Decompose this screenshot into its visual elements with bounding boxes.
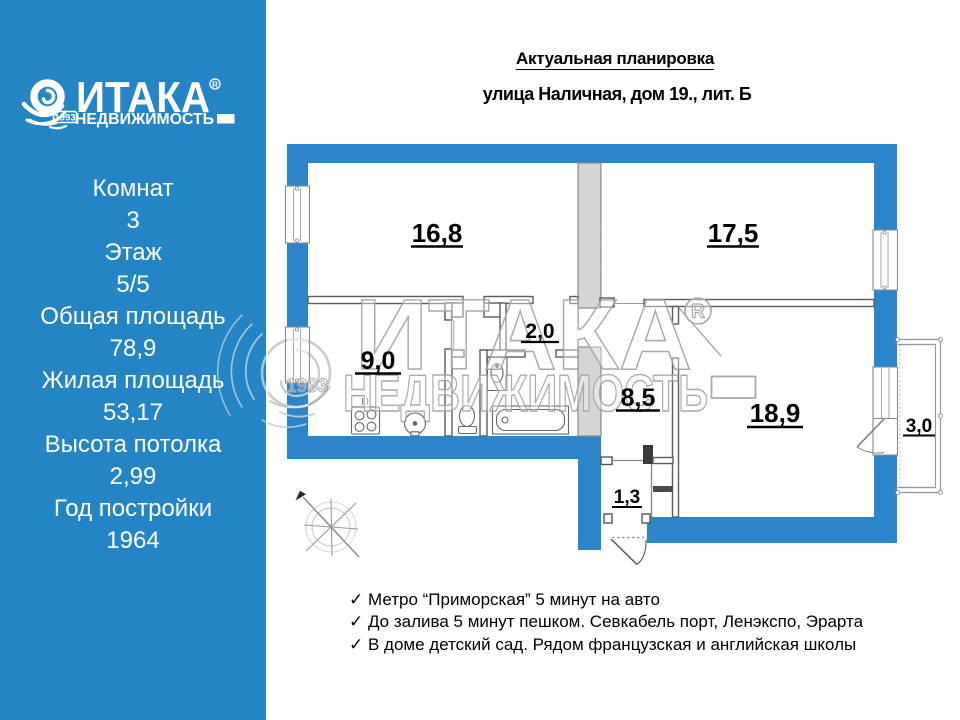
svg-text:18,9: 18,9 [750,398,801,428]
svg-text:ИТАКА: ИТАКА [355,279,692,391]
svg-text:9,0: 9,0 [361,347,396,375]
svg-text:8,5: 8,5 [621,384,656,412]
svg-text:2,0: 2,0 [525,320,554,343]
svg-text:1993: 1993 [54,113,75,124]
svg-text:1,3: 1,3 [614,487,640,508]
svg-text:1993: 1993 [286,376,328,397]
svg-text:R: R [212,81,218,90]
svg-text:16,8: 16,8 [412,218,463,248]
svg-text:НЕДВИЖИМОСТЬ: НЕДВИЖИМОСТЬ [343,365,708,423]
svg-text:3,0: 3,0 [906,416,932,437]
svg-text:R: R [691,302,705,323]
svg-text:17,5: 17,5 [708,218,759,248]
svg-text:НЕДВИЖИМОСТЬ: НЕДВИЖИМОСТЬ [75,111,214,128]
